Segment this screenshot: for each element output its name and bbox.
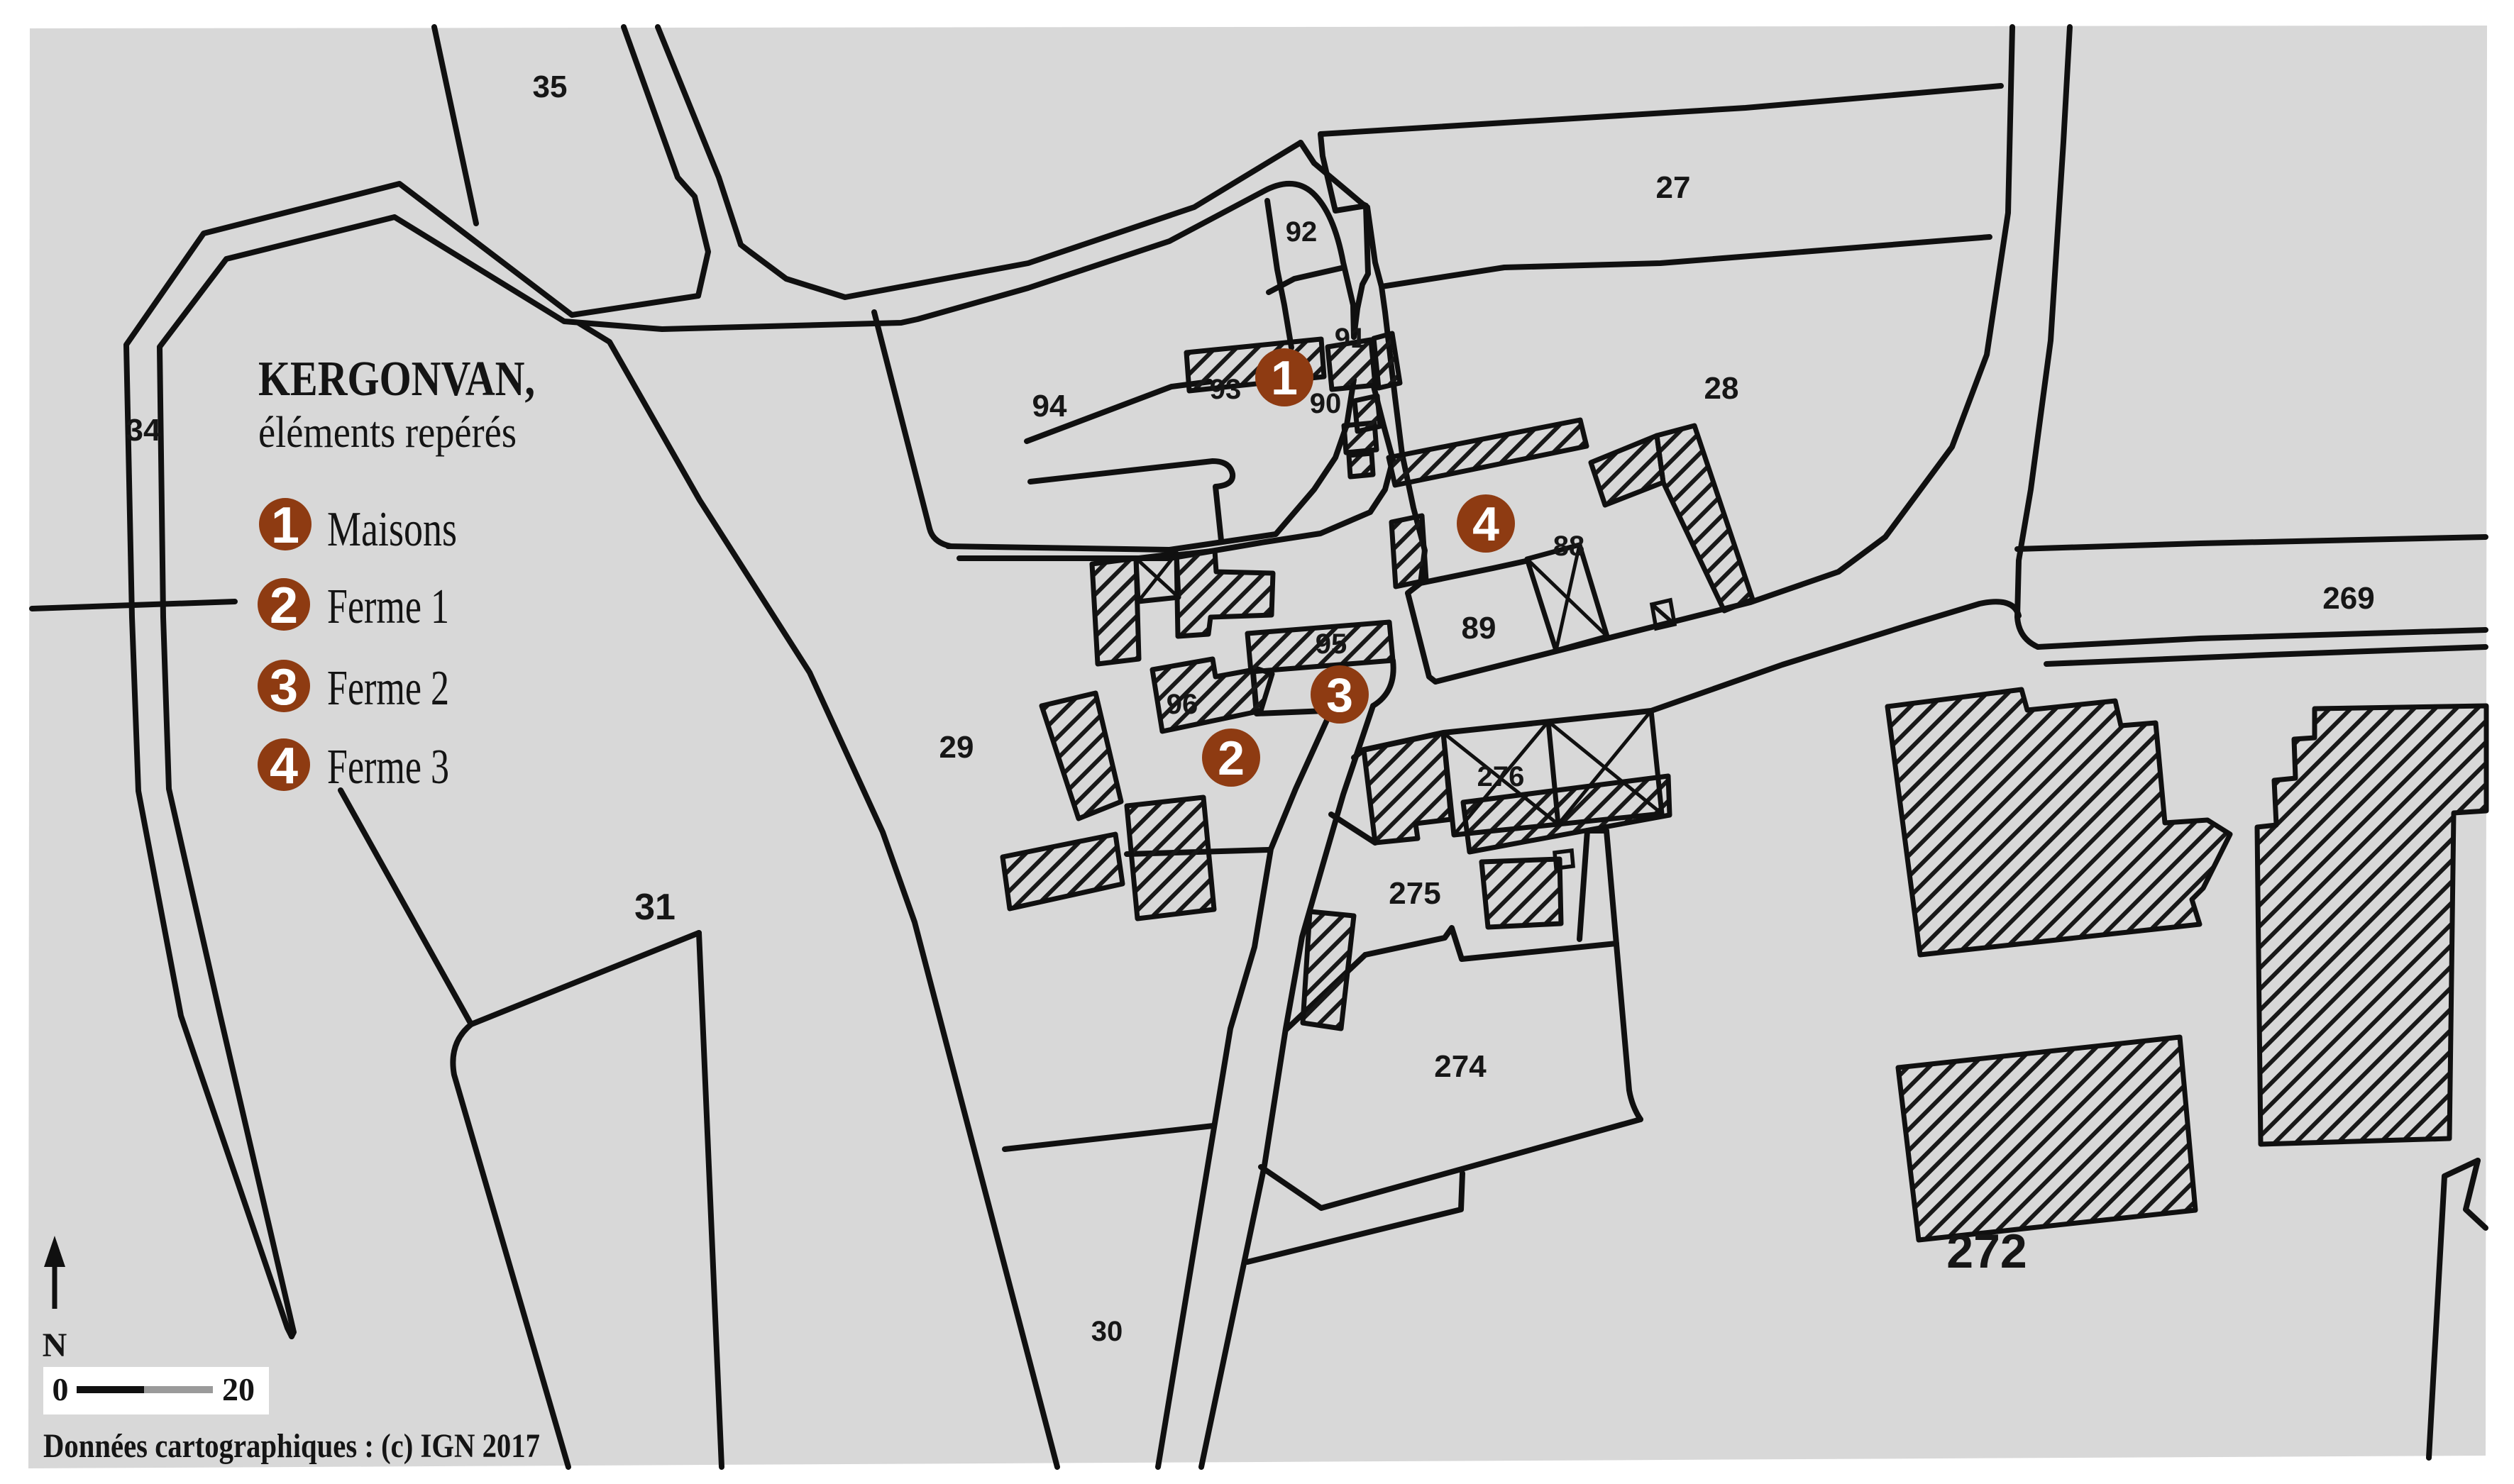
svg-text:N: N bbox=[43, 1327, 67, 1364]
svg-text:3: 3 bbox=[270, 659, 298, 716]
svg-text:2: 2 bbox=[1218, 731, 1245, 785]
svg-text:Ferme 1: Ferme 1 bbox=[327, 580, 449, 634]
svg-text:Maisons: Maisons bbox=[327, 502, 457, 557]
svg-text:éléments repérés: éléments repérés bbox=[258, 409, 517, 457]
svg-text:91: 91 bbox=[1335, 323, 1367, 354]
svg-text:Ferme 2: Ferme 2 bbox=[327, 661, 449, 716]
svg-text:29: 29 bbox=[939, 730, 974, 765]
svg-text:94: 94 bbox=[1032, 389, 1067, 423]
svg-text:3: 3 bbox=[1326, 668, 1353, 722]
svg-text:274: 274 bbox=[1434, 1049, 1487, 1084]
svg-text:92: 92 bbox=[1286, 216, 1318, 248]
svg-text:1: 1 bbox=[271, 497, 299, 554]
svg-text:28: 28 bbox=[1704, 371, 1739, 406]
svg-text:2: 2 bbox=[270, 577, 298, 634]
svg-text:0: 0 bbox=[53, 1371, 69, 1407]
svg-text:KERGONVAN,: KERGONVAN, bbox=[258, 352, 535, 406]
svg-text:Ferme 3: Ferme 3 bbox=[327, 740, 449, 794]
svg-text:93: 93 bbox=[1210, 374, 1242, 405]
svg-text:27: 27 bbox=[1656, 170, 1691, 205]
svg-text:88: 88 bbox=[1553, 531, 1585, 562]
svg-text:276: 276 bbox=[1477, 761, 1525, 792]
svg-text:1: 1 bbox=[1271, 351, 1298, 405]
svg-text:96: 96 bbox=[1167, 689, 1198, 720]
svg-text:31: 31 bbox=[634, 887, 676, 928]
svg-text:89: 89 bbox=[1462, 611, 1496, 646]
svg-text:35: 35 bbox=[533, 70, 568, 104]
svg-text:4: 4 bbox=[1472, 497, 1499, 551]
svg-text:269: 269 bbox=[2322, 581, 2374, 616]
svg-text:95: 95 bbox=[1316, 629, 1347, 660]
svg-text:Données cartographiques : (c): Données cartographiques : (c) IGN 2017 bbox=[43, 1427, 540, 1465]
svg-text:90: 90 bbox=[1310, 388, 1342, 419]
svg-text:4: 4 bbox=[270, 738, 298, 794]
svg-text:20: 20 bbox=[222, 1371, 255, 1407]
svg-text:34: 34 bbox=[126, 413, 161, 448]
svg-text:272: 272 bbox=[1946, 1224, 2027, 1278]
svg-text:30: 30 bbox=[1091, 1316, 1123, 1347]
svg-text:275: 275 bbox=[1389, 876, 1440, 911]
